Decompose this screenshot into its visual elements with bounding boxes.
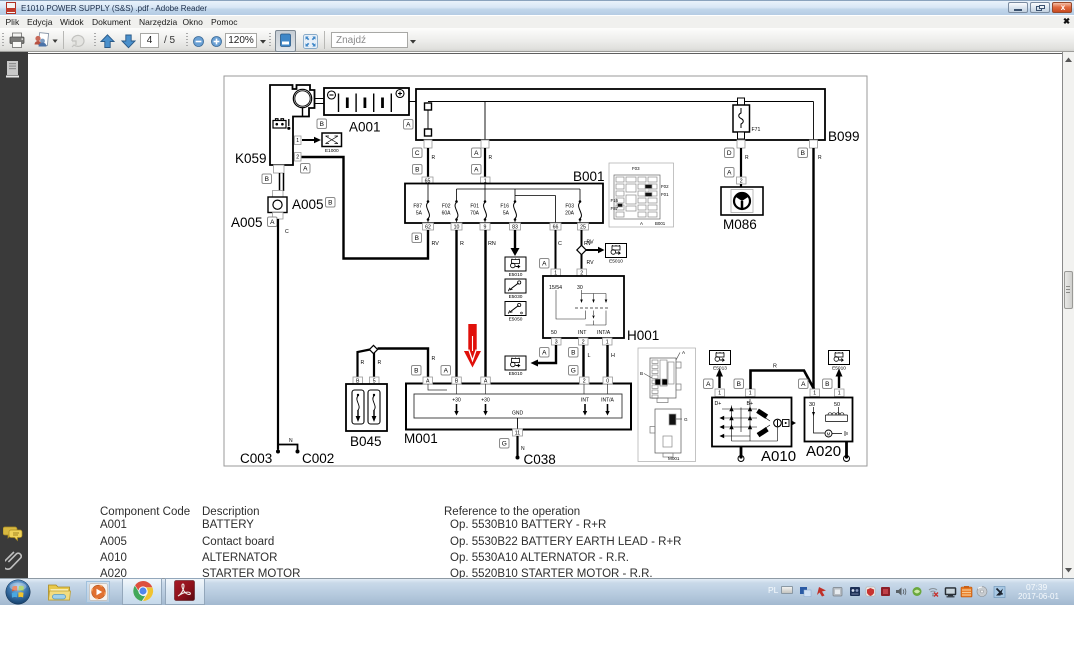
svg-text:B: B [414, 368, 418, 375]
svg-text:B: B [415, 167, 419, 174]
svg-text:B: B [328, 200, 332, 207]
svg-text:C003: C003 [240, 451, 272, 466]
svg-text:0: 0 [606, 378, 609, 384]
svg-text:E5010: E5010 [609, 259, 623, 265]
svg-text:B: B [320, 121, 324, 128]
svg-text:1: 1 [813, 391, 816, 397]
svg-text:H001: H001 [627, 328, 659, 343]
svg-text:50: 50 [834, 402, 840, 408]
svg-text:C038: C038 [524, 452, 556, 467]
svg-text:20A: 20A [565, 211, 575, 217]
svg-text:F16: F16 [611, 198, 619, 203]
svg-text:A: A [640, 221, 643, 226]
svg-text:+30: +30 [481, 398, 490, 404]
svg-text:C: C [415, 150, 420, 157]
svg-text:N: N [289, 438, 293, 444]
svg-text:INT/A: INT/A [597, 330, 611, 336]
svg-text:70A: 70A [470, 211, 480, 217]
svg-text:R: R [432, 155, 436, 161]
svg-text:GND: GND [512, 411, 524, 417]
svg-text:5A: 5A [416, 211, 423, 217]
svg-text:R: R [773, 364, 777, 370]
svg-text:A: A [270, 219, 275, 226]
svg-text:R: R [745, 155, 749, 161]
svg-text:B: B [825, 381, 829, 388]
svg-text:10: 10 [454, 224, 460, 230]
svg-text:INT: INT [581, 398, 589, 404]
svg-text:E5010: E5010 [509, 371, 523, 377]
svg-text:62: 62 [425, 224, 431, 230]
svg-text:30: 30 [577, 285, 583, 291]
svg-text:83: 83 [512, 224, 518, 230]
svg-text:F01: F01 [661, 192, 669, 197]
svg-text:E5010: E5010 [509, 272, 523, 278]
svg-text:A: A [801, 381, 806, 388]
svg-text:R: R [432, 356, 436, 362]
svg-text:E5050: E5050 [509, 317, 523, 323]
svg-text:RV: RV [587, 260, 595, 266]
svg-text:A010: A010 [761, 448, 796, 465]
svg-text:A020: A020 [806, 443, 841, 460]
svg-text:D+: D+ [715, 401, 722, 407]
svg-text:A: A [682, 350, 686, 355]
svg-text:B: B [571, 350, 575, 357]
svg-text:B: B [415, 235, 419, 242]
svg-text:15/54: 15/54 [549, 285, 562, 291]
svg-text:M: M [827, 432, 831, 437]
svg-text:A: A [542, 350, 547, 357]
svg-text:B001: B001 [655, 221, 666, 226]
svg-text:E5030: E5030 [509, 294, 523, 300]
svg-text:A: A [542, 261, 547, 268]
svg-text:C002: C002 [302, 451, 334, 466]
svg-text:R: R [460, 241, 464, 247]
svg-text:A: A [426, 378, 430, 384]
svg-text:B045: B045 [350, 434, 382, 449]
svg-text:A: A [303, 166, 308, 173]
svg-text:2: 2 [740, 178, 743, 184]
svg-text:B: B [737, 381, 741, 388]
svg-text:M001: M001 [404, 431, 438, 446]
svg-text:D: D [727, 150, 732, 157]
svg-text:G: G [502, 441, 507, 448]
svg-text:A: A [706, 381, 711, 388]
svg-text:M086: M086 [723, 217, 757, 232]
svg-text:R: R [818, 155, 822, 161]
svg-text:F71: F71 [752, 127, 761, 133]
svg-text:2: 2 [582, 339, 585, 345]
svg-text:25: 25 [580, 224, 586, 230]
svg-text:A: A [484, 378, 488, 384]
svg-text:F87: F87 [611, 206, 619, 211]
svg-text:C: C [558, 241, 562, 247]
svg-text:A005: A005 [231, 215, 263, 230]
svg-text:66: 66 [553, 224, 559, 230]
svg-text:R: R [489, 155, 493, 161]
svg-text:RN: RN [488, 241, 496, 247]
svg-text:G: G [684, 417, 688, 422]
svg-text:11: 11 [515, 430, 520, 436]
svg-text:A: A [727, 170, 732, 177]
svg-text:F03: F03 [632, 166, 640, 171]
svg-text:A: A [406, 122, 411, 129]
svg-text:1: 1 [749, 391, 752, 397]
svg-text:A001: A001 [349, 120, 381, 135]
svg-text:B: B [801, 150, 805, 157]
svg-text:2: 2 [296, 155, 299, 161]
svg-text:F02: F02 [661, 184, 669, 189]
svg-text:5A: 5A [503, 211, 510, 217]
svg-text:B: B [455, 378, 459, 384]
svg-text:1: 1 [606, 339, 609, 345]
svg-text:A005: A005 [292, 197, 324, 212]
svg-text:R: R [378, 360, 382, 366]
svg-text:K059: K059 [235, 151, 267, 166]
svg-text:M001: M001 [668, 456, 680, 461]
svg-text:F02: F02 [442, 204, 451, 210]
svg-text:F03: F03 [565, 204, 574, 210]
svg-text:A: A [444, 368, 449, 375]
svg-text:RV: RV [587, 240, 595, 246]
svg-text:F01: F01 [470, 204, 479, 210]
svg-text:30: 30 [809, 402, 815, 408]
svg-text:3: 3 [555, 339, 558, 345]
svg-text:L: L [588, 353, 591, 359]
svg-text:60A: 60A [442, 211, 452, 217]
svg-text:1: 1 [718, 391, 721, 397]
svg-text:G: G [571, 368, 576, 375]
svg-text:F16: F16 [500, 204, 509, 210]
svg-text:1: 1 [296, 138, 299, 144]
svg-text:B: B [640, 371, 643, 376]
svg-text:2: 2 [583, 378, 586, 384]
svg-text:RV: RV [432, 241, 440, 247]
svg-text:INT: INT [578, 330, 587, 336]
svg-text:C: C [285, 229, 289, 235]
svg-text:+30: +30 [452, 398, 461, 404]
svg-text:E1000: E1000 [325, 148, 339, 154]
svg-text:1: 1 [838, 391, 841, 397]
svg-text:A: A [474, 150, 479, 157]
svg-text:R: R [361, 360, 365, 366]
svg-text:A: A [474, 167, 479, 174]
svg-text:50: 50 [551, 330, 557, 336]
svg-text:B099: B099 [828, 129, 860, 144]
svg-text:H: H [611, 353, 615, 359]
svg-text:B: B [265, 176, 269, 183]
svg-text:B001: B001 [573, 169, 605, 184]
svg-text:F87: F87 [413, 204, 422, 210]
svg-text:9: 9 [484, 224, 487, 230]
svg-text:INT/A: INT/A [601, 398, 614, 404]
